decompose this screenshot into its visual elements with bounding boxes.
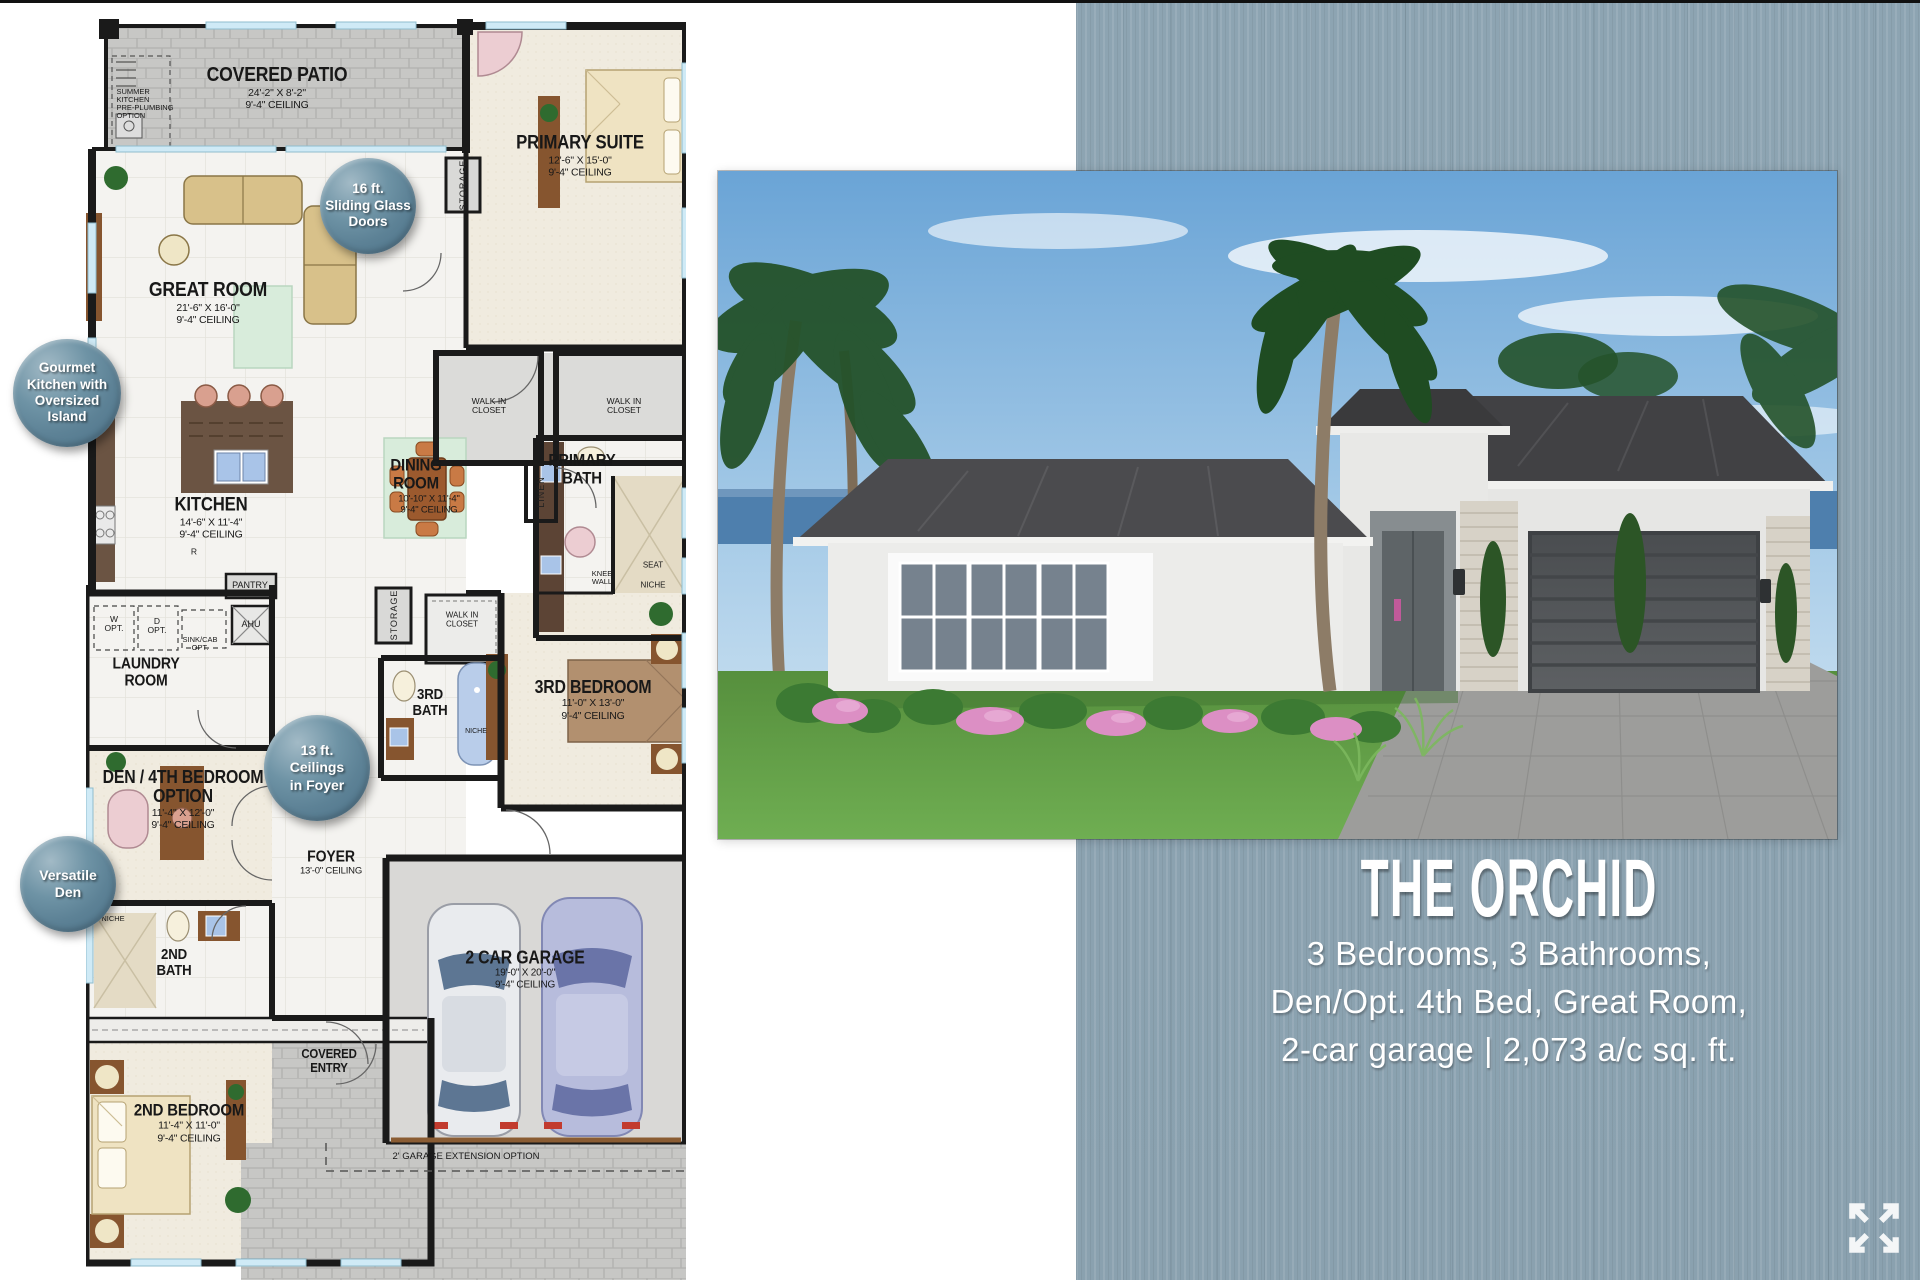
label-second-bath: 2ND BATH bbox=[150, 947, 198, 979]
label-pantry: PANTRY bbox=[232, 581, 268, 591]
label-walk-in-closet-1: WALK IN CLOSET bbox=[472, 397, 507, 415]
label-walk-in-closet-2: WALK IN CLOSET bbox=[607, 397, 642, 415]
label-storage-1: STORAGE bbox=[458, 160, 468, 211]
label-ahu: AHU bbox=[241, 620, 260, 630]
label-sink-cab-opt: SINK/CAB OPT. bbox=[182, 636, 217, 652]
label-niche-2: NICHE bbox=[465, 728, 487, 736]
label-third-bath: 3RD BATH bbox=[406, 687, 454, 719]
label-niche-1: NICHE bbox=[641, 582, 666, 591]
house-rendering-photo bbox=[718, 171, 1837, 839]
label-summer-kitchen: SUMMER KITCHEN PRE-PLUMBING OPTION bbox=[116, 88, 173, 120]
spec-line-3: 2-car garage | 2,073 a/c sq. ft. bbox=[1098, 1026, 1920, 1074]
label-third-bedroom: 3RD BEDROOM 11'-0" X 13'-0" 9'-4" CEILIN… bbox=[527, 678, 660, 722]
badge-versatile-den: Versatile Den bbox=[20, 836, 116, 932]
badge-sliding-glass-doors: 16 ft. Sliding Glass Doors bbox=[320, 158, 416, 254]
label-range: R bbox=[191, 547, 197, 556]
spec-line-2: Den/Opt. 4th Bed, Great Room, bbox=[1098, 978, 1920, 1026]
label-garage: 2 CAR GARAGE 19'-0" X 20'-0" 9'-4" CEILI… bbox=[457, 948, 593, 991]
label-d-opt: D OPT. bbox=[148, 617, 167, 635]
house-rendering bbox=[718, 171, 1837, 839]
marketing-sheet: { "page": { "background": "#ffffff", "pa… bbox=[0, 0, 1920, 1280]
label-storage-2: STORAGE bbox=[389, 590, 399, 641]
label-primary-bath: PRIMARY BATH bbox=[542, 452, 622, 489]
label-second-bedroom: 2ND BEDROOM 11'-4" X 11'-0" 9'-4" CEILIN… bbox=[126, 1101, 251, 1144]
spec-line-1: 3 Bedrooms, 3 Bathrooms, bbox=[1098, 930, 1920, 978]
label-great-room: GREAT ROOM 21'-6" X 16'-0" 9'-4" CEILING bbox=[141, 280, 275, 326]
label-dining-room: DINING ROOM 10'-10" X 11'-4" 9'-4" CEILI… bbox=[384, 456, 474, 515]
title-block: THE ORCHID 3 Bedrooms, 3 Bathrooms, Den/… bbox=[1076, 848, 1920, 1074]
label-garage-extension: 2' GARAGE EXTENSION OPTION bbox=[393, 1152, 540, 1162]
label-covered-entry: COVERED ENTRY bbox=[294, 1047, 364, 1075]
home-name: THE ORCHID bbox=[1098, 848, 1920, 930]
label-seat: SEAT bbox=[643, 562, 663, 571]
badge-gourmet-kitchen: Gourmet Kitchen with Oversized Island bbox=[13, 339, 121, 447]
expand-icon[interactable] bbox=[1843, 1197, 1905, 1259]
label-den: DEN / 4TH BEDROOM OPTION 11'-4" X 12'-0"… bbox=[91, 768, 276, 832]
label-covered-patio: COVERED PATIO 24'-2" X 8'-2" 9'-4" CEILI… bbox=[197, 65, 357, 111]
label-niche-3: NICHE bbox=[101, 915, 124, 923]
badge-foyer-ceilings: 13 ft. Ceilings in Foyer bbox=[264, 715, 370, 821]
top-border bbox=[0, 0, 1920, 3]
label-primary-suite: PRIMARY SUITE 12'-6" X 15'-0" 9'-4" CEIL… bbox=[507, 133, 652, 178]
label-knee-wall: KNEE WALL bbox=[592, 570, 612, 586]
label-foyer: FOYER 13'-0" CEILING bbox=[300, 849, 362, 878]
label-w-opt: W OPT. bbox=[105, 615, 124, 633]
label-walk-in-closet-3: WALK IN CLOSET bbox=[446, 611, 479, 628]
label-laundry-room: LAUNDRY ROOM bbox=[100, 656, 192, 691]
label-kitchen: KITCHEN 14'-6" X 11'-4" 9'-4" CEILING bbox=[169, 495, 252, 540]
